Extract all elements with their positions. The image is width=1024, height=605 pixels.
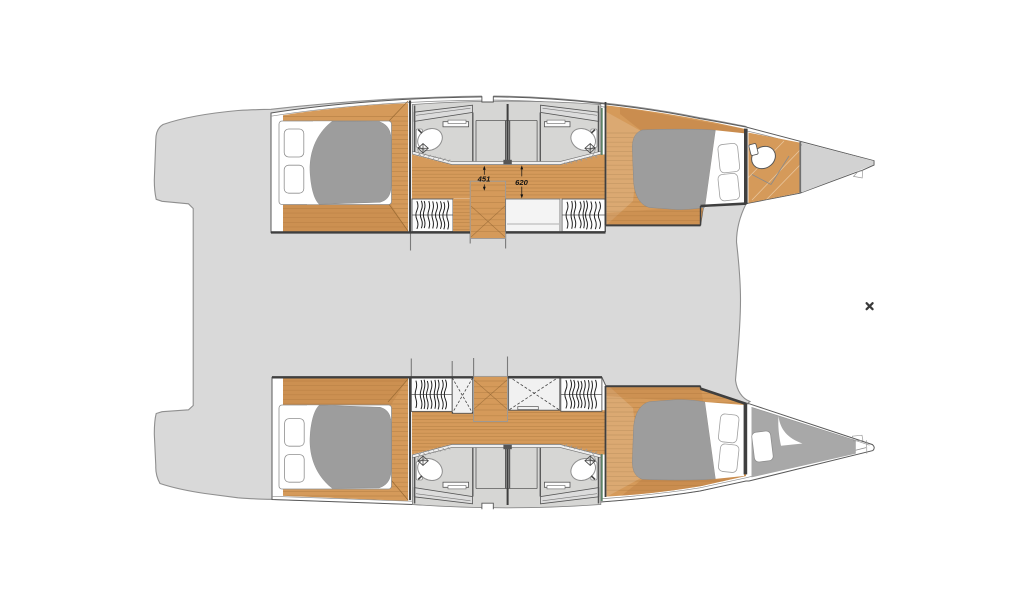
svg-text:451: 451 <box>477 175 491 184</box>
svg-text:620: 620 <box>515 178 528 187</box>
